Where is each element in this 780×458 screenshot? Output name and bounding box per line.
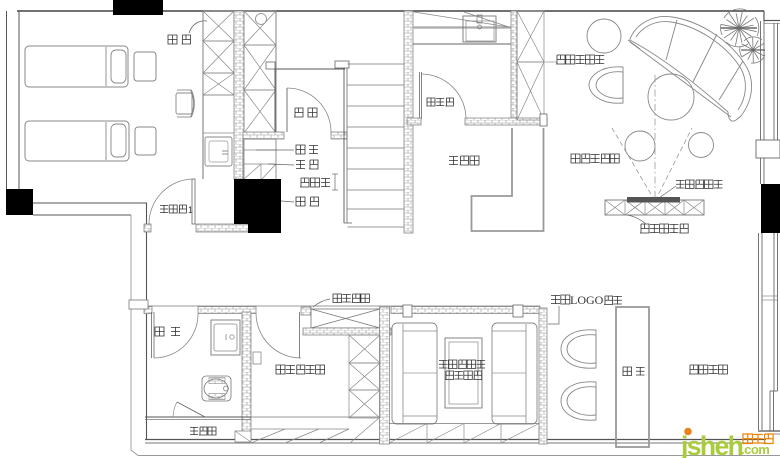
svg-text:.com: .com xyxy=(741,442,769,457)
svg-text:LOGO: LOGO xyxy=(570,293,604,307)
svg-text:jsheh: jsheh xyxy=(680,431,743,458)
